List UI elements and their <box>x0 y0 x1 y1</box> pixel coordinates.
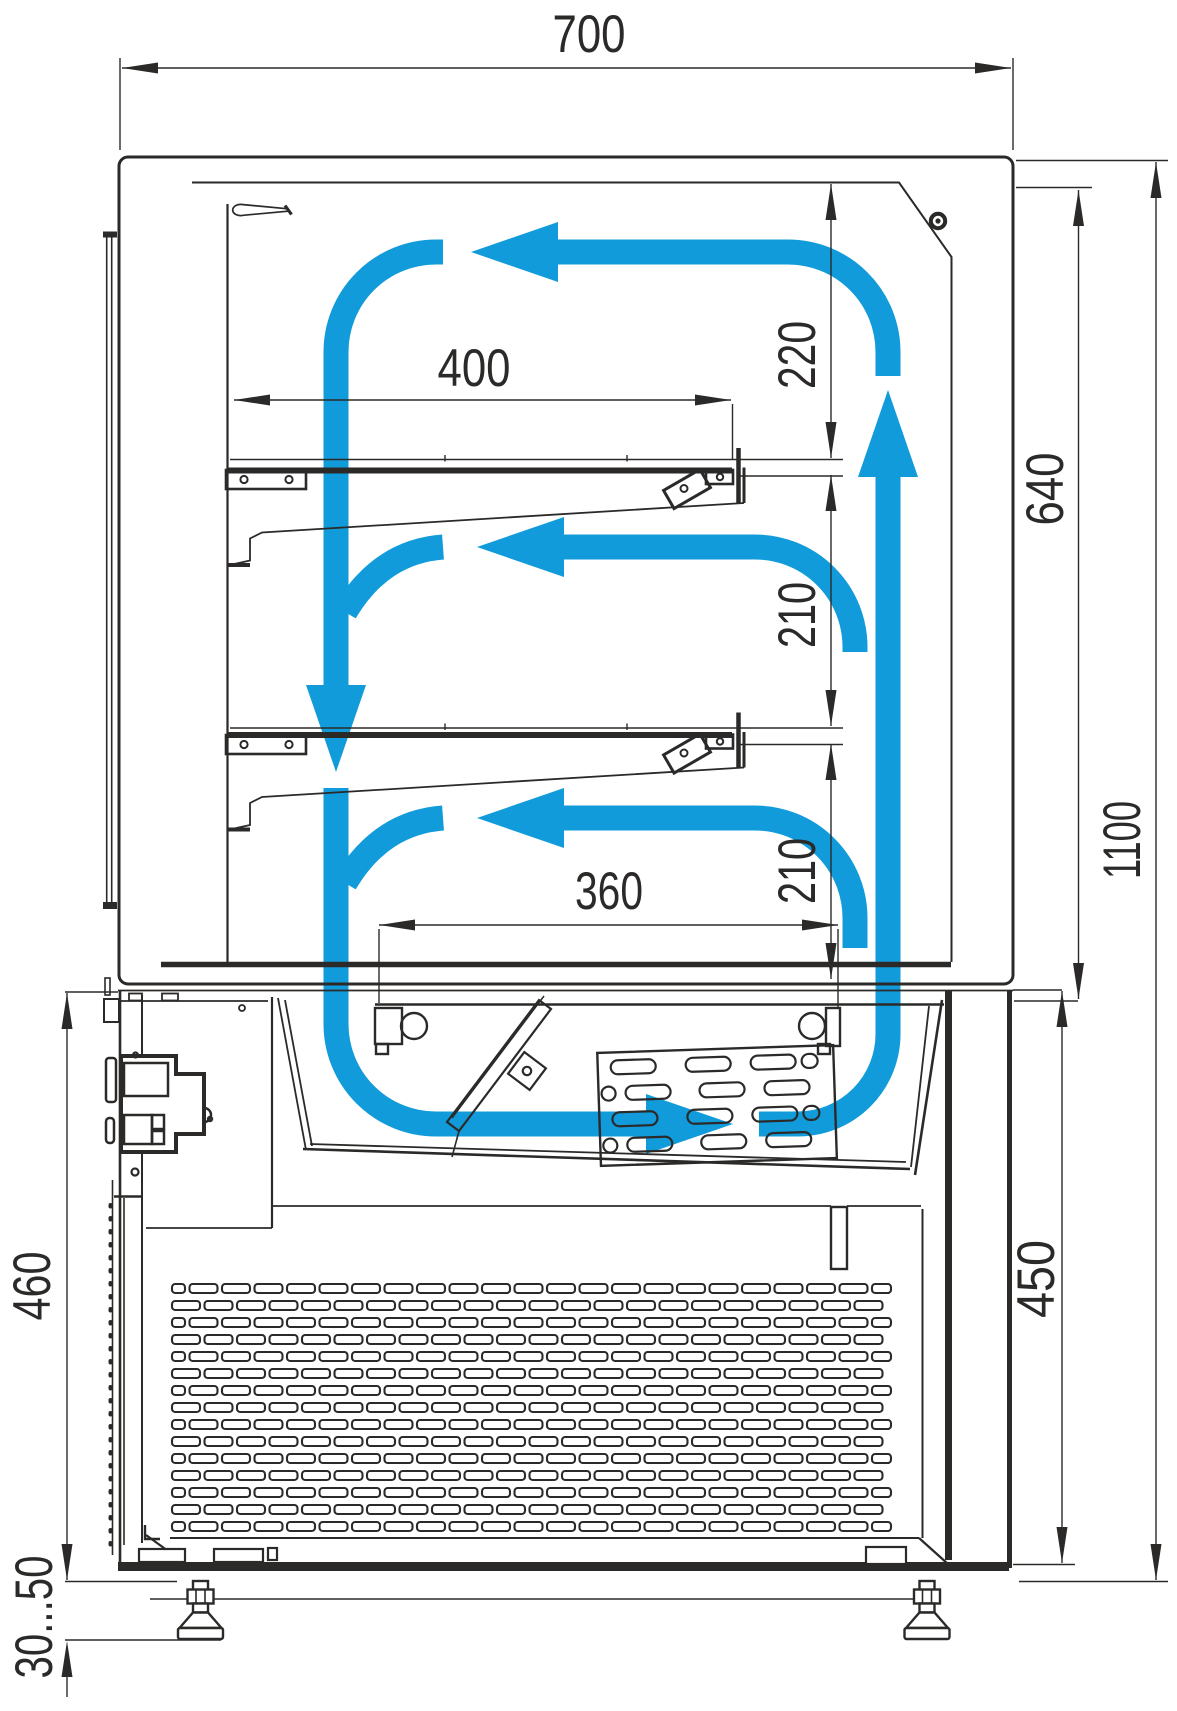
svg-text:210: 210 <box>768 838 827 904</box>
svg-text:450: 450 <box>1007 1240 1066 1318</box>
svg-text:220: 220 <box>768 321 827 389</box>
svg-text:360: 360 <box>575 862 643 921</box>
svg-text:460: 460 <box>3 1252 62 1321</box>
svg-text:700: 700 <box>553 5 626 64</box>
svg-text:210: 210 <box>768 582 827 648</box>
svg-text:1100: 1100 <box>1093 801 1152 879</box>
svg-text:30...50: 30...50 <box>5 1556 64 1679</box>
svg-text:400: 400 <box>438 339 511 398</box>
svg-text:640: 640 <box>1016 453 1075 526</box>
